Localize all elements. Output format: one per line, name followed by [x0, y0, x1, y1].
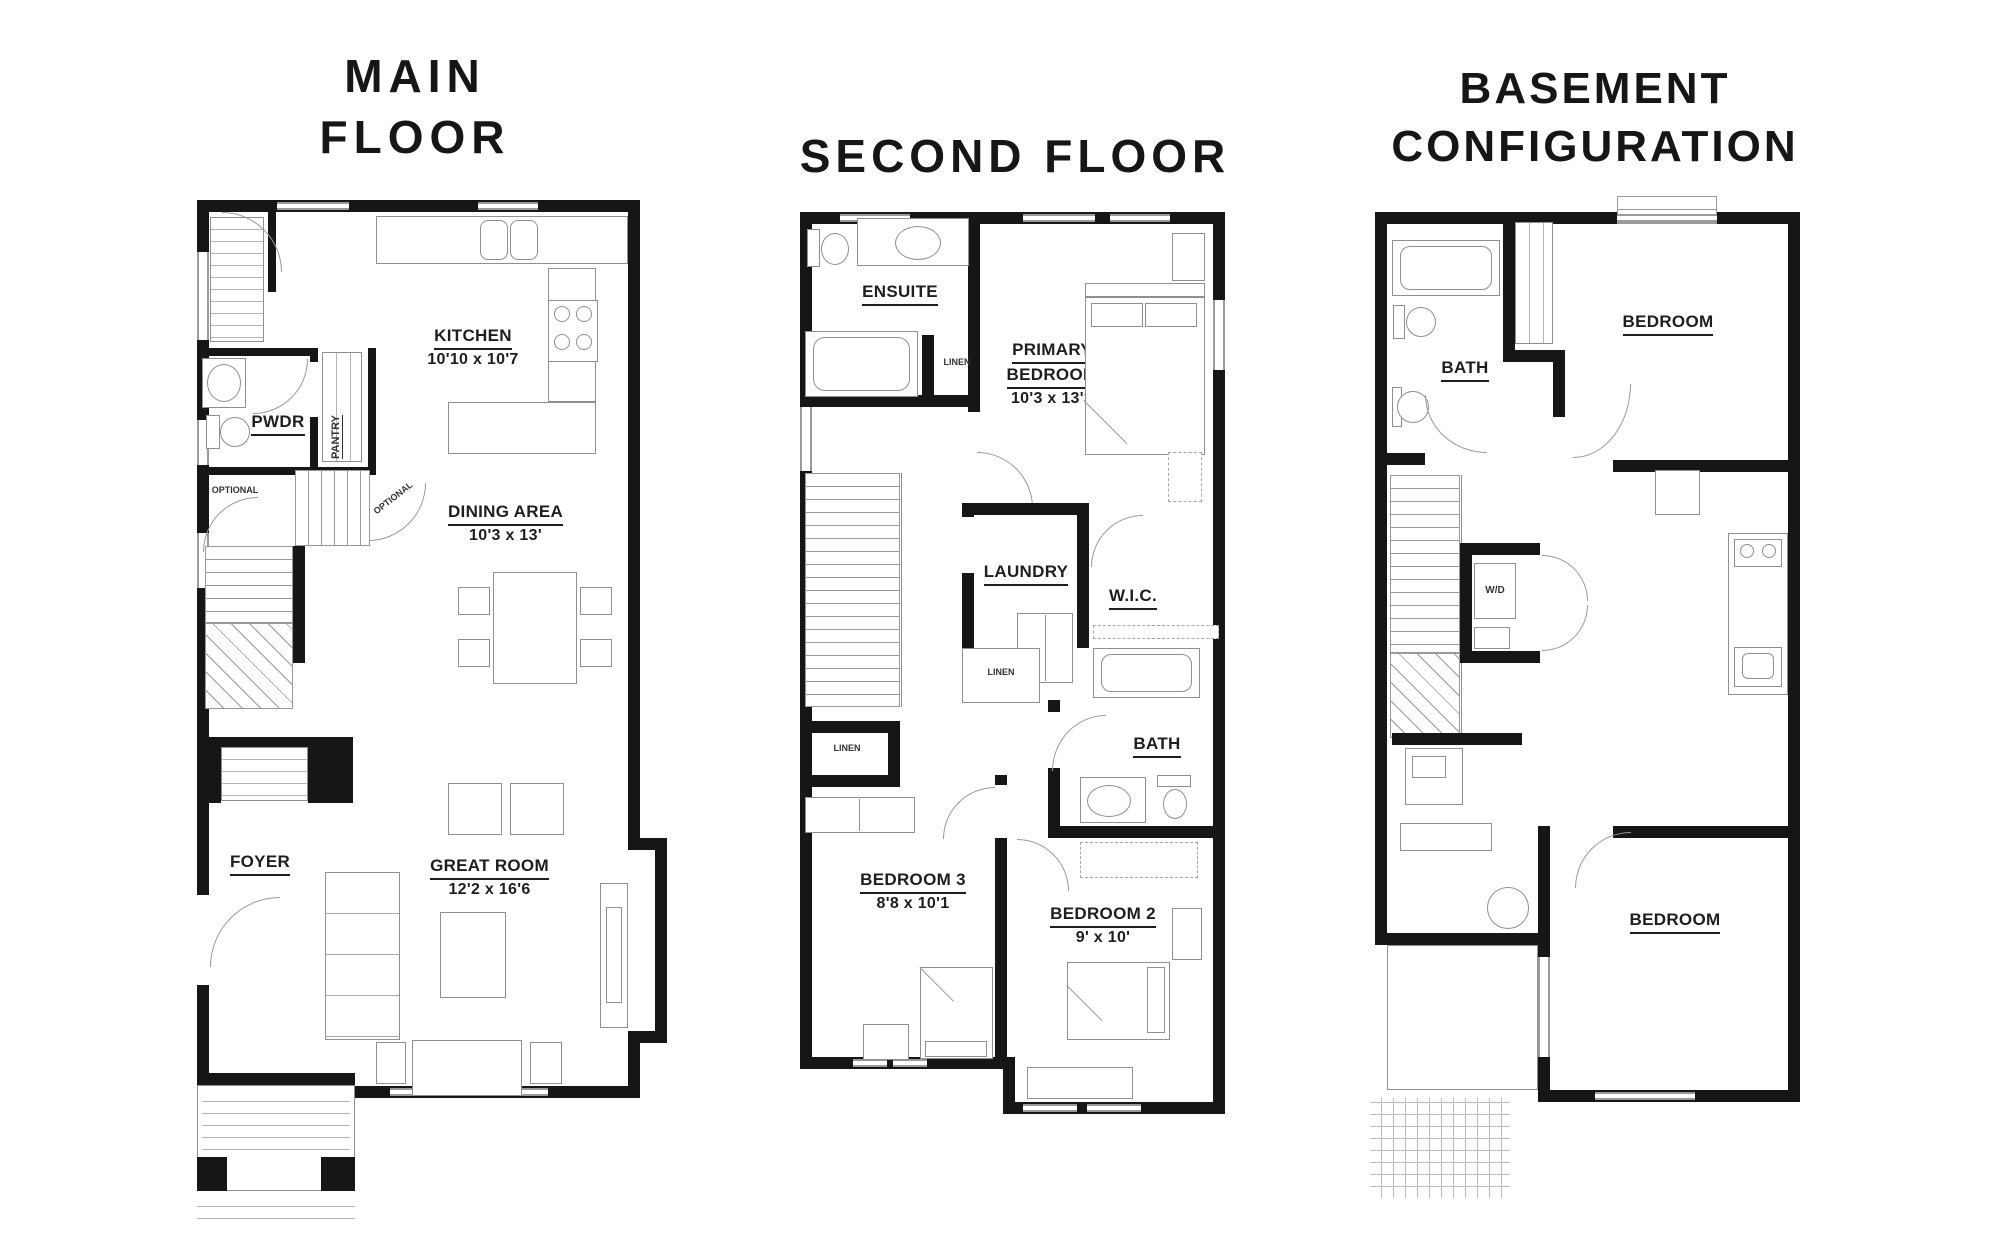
- bedroom2-label: BEDROOM 2 9' x 10': [1033, 903, 1173, 949]
- window: [1595, 1092, 1695, 1100]
- entry-door-arc: [210, 897, 280, 967]
- bedroom-top-label: BEDROOM: [1598, 311, 1738, 336]
- door-arc: [1052, 715, 1106, 771]
- toilet: [1406, 307, 1436, 337]
- wic-label: W.I.C.: [1089, 585, 1177, 610]
- wall: [1460, 543, 1472, 663]
- basement-title: BASEMENT CONFIGURATION: [1355, 60, 1835, 176]
- bath-label: BATH: [1121, 733, 1193, 758]
- closet-door-divider: [859, 799, 860, 831]
- window: [853, 1059, 887, 1067]
- wall: [308, 747, 353, 803]
- closet-shelves: [1515, 222, 1553, 344]
- pantry-shelves: [322, 352, 362, 462]
- door-arc: [1425, 395, 1487, 453]
- chair: [580, 587, 612, 615]
- wall: [1553, 362, 1565, 417]
- bedroom-bottom-label: BEDROOM: [1605, 909, 1745, 934]
- chair: [458, 639, 490, 667]
- wall: [1460, 543, 1540, 555]
- wd-label: W/D: [1474, 585, 1516, 596]
- window: [197, 252, 209, 340]
- door-arc: [943, 787, 995, 839]
- wall: [205, 747, 221, 803]
- sink: [1087, 785, 1131, 817]
- door-arc: [253, 359, 308, 414]
- wall: [922, 335, 934, 397]
- window: [1110, 214, 1170, 222]
- wall: [655, 838, 667, 1043]
- wall: [628, 200, 640, 850]
- dining-label: DINING AREA 10'3 x 13': [418, 501, 593, 547]
- wall: [1460, 651, 1540, 663]
- porch-steps: [197, 1195, 355, 1230]
- toilet-tank: [807, 229, 820, 267]
- wall: [995, 838, 1007, 1057]
- wall: [1375, 933, 1550, 945]
- main-floor-title-line1: MAIN: [190, 46, 640, 107]
- door-arc: [977, 452, 1033, 508]
- chair: [458, 587, 490, 615]
- wall: [995, 775, 1007, 785]
- toilet-tank: [1157, 775, 1191, 787]
- dining-table: [493, 572, 577, 684]
- bathtub-basin: [1400, 246, 1492, 290]
- kitchenette-sink-basin: [1742, 653, 1774, 679]
- pillow: [1145, 303, 1197, 327]
- window: [277, 202, 349, 210]
- kitchen-sink: [510, 220, 538, 260]
- bath-label: BATH: [1410, 357, 1520, 382]
- burner: [554, 306, 570, 322]
- toilet: [821, 233, 849, 265]
- armchair: [448, 783, 502, 835]
- sink: [895, 226, 941, 260]
- stairs: [205, 546, 293, 623]
- toilet-tank: [1393, 305, 1405, 339]
- dresser: [863, 1024, 909, 1060]
- main-floor-plan: PWDR PANTRY OPTIONAL OPTIONAL KITCHEN 10…: [190, 195, 690, 1235]
- table: [1655, 470, 1700, 515]
- porch-boards: [202, 1090, 350, 1150]
- armchair: [510, 783, 564, 835]
- window: [478, 202, 538, 210]
- washer-dryer-divider: [1045, 615, 1046, 681]
- wall: [205, 737, 353, 747]
- toilet: [1163, 789, 1187, 819]
- desk-monitor: [1412, 756, 1446, 778]
- optional-label: OPTIONAL: [203, 485, 267, 495]
- bathtub-basin: [1101, 654, 1192, 692]
- closet-shelves: [221, 747, 308, 801]
- wall: [1048, 700, 1060, 712]
- chair: [580, 639, 612, 667]
- window: [800, 405, 812, 471]
- window: [1617, 214, 1717, 222]
- door-arc: [203, 497, 258, 552]
- second-floor-title: SECOND FLOOR: [780, 126, 1250, 187]
- stairs: [295, 470, 370, 546]
- stairs: [1390, 475, 1460, 653]
- window: [1023, 214, 1095, 222]
- door-opening: [197, 895, 209, 985]
- basement-plan: BATH BEDROOM W/D BEDROOM: [1370, 195, 1830, 1205]
- console-table: [1400, 823, 1492, 851]
- bedroom3-label: BEDROOM 3 8'8 x 10'1: [843, 869, 983, 915]
- pwdr-label: PWDR: [238, 411, 318, 436]
- kitchen-sink: [480, 220, 508, 260]
- patio-door: [1538, 957, 1550, 1057]
- bed-headboard: [1085, 283, 1205, 297]
- nightstand: [1172, 233, 1205, 281]
- closet-shelf: [1093, 625, 1219, 639]
- porch-post: [197, 1157, 227, 1191]
- wall: [1613, 460, 1800, 472]
- pillow: [925, 1041, 987, 1057]
- wall: [368, 348, 376, 475]
- kitchen-island: [448, 402, 596, 454]
- wall: [197, 348, 318, 356]
- stairs: [805, 473, 900, 707]
- main-floor-title-line2: FLOOR: [190, 107, 640, 168]
- wall: [1375, 453, 1425, 465]
- ensuite-label: ENSUITE: [840, 281, 960, 306]
- floor-plan-image: { "titles": { "main_line1": "MAIN", "mai…: [0, 0, 2000, 1235]
- coffee-table: [440, 912, 506, 998]
- linen-label: LINEN: [807, 743, 887, 753]
- closet: [1080, 842, 1198, 878]
- fireplace-insert: [606, 907, 622, 1003]
- sofa: [325, 872, 400, 1040]
- door-arc: [1575, 832, 1631, 888]
- wall: [293, 546, 305, 663]
- wall: [962, 503, 974, 517]
- wall: [628, 1031, 667, 1043]
- foyer-label: FOYER: [215, 851, 305, 876]
- wall: [628, 1043, 640, 1098]
- patio-hatch: [1370, 1098, 1510, 1198]
- toilet-tank: [206, 415, 220, 449]
- door-arc: [1017, 839, 1069, 891]
- wall: [962, 503, 1089, 515]
- loveseat: [412, 1040, 522, 1096]
- wall: [1375, 212, 1800, 224]
- wall: [800, 775, 900, 787]
- door-arc: [1573, 384, 1631, 458]
- pillow: [1147, 967, 1165, 1033]
- door-arc: [1091, 515, 1143, 567]
- closet-sliding-doors: [805, 797, 915, 833]
- chair: [1487, 887, 1529, 929]
- burner: [576, 306, 592, 322]
- door-arc: [1542, 555, 1588, 601]
- wall: [197, 200, 640, 212]
- dresser: [1168, 452, 1202, 502]
- wall: [800, 721, 900, 733]
- window: [1023, 1104, 1077, 1112]
- basement-title-line2: CONFIGURATION: [1355, 118, 1835, 176]
- kitchen-label: KITCHEN 10'10 x 10'7: [388, 325, 558, 371]
- main-floor-title: MAIN FLOOR: [190, 46, 640, 167]
- dresser: [1027, 1067, 1133, 1099]
- wall: [1613, 826, 1800, 838]
- pillow: [1091, 303, 1143, 327]
- sink: [207, 364, 241, 402]
- side-table: [530, 1042, 562, 1084]
- bathtub-basin: [813, 337, 910, 391]
- burner: [1762, 544, 1776, 558]
- side-table: [376, 1042, 406, 1084]
- patio: [1387, 945, 1538, 1090]
- wall: [1375, 212, 1387, 945]
- stair-rail: [901, 473, 902, 707]
- door-arc: [1542, 605, 1588, 651]
- laundry-label: LAUNDRY: [965, 561, 1087, 586]
- wall: [197, 1073, 355, 1085]
- wall: [1788, 212, 1800, 1102]
- burner: [1740, 544, 1754, 558]
- window: [893, 1059, 927, 1067]
- stairs-under: [1390, 653, 1460, 738]
- basement-title-line1: BASEMENT: [1355, 60, 1835, 118]
- linen-label: LINEN: [935, 357, 979, 367]
- stairs-winders: [205, 623, 293, 709]
- nightstand: [1172, 908, 1202, 960]
- wall: [310, 348, 318, 362]
- shelf: [1474, 627, 1510, 649]
- porch-post: [321, 1157, 355, 1191]
- great-room-label: GREAT ROOM 12'2 x 16'6: [402, 855, 577, 901]
- window: [1087, 1104, 1141, 1112]
- window: [1213, 300, 1225, 370]
- wall: [1392, 733, 1522, 745]
- second-floor-plan: ENSUITE LINEN PRIMARY BEDROOM 10'3 x 13'…: [795, 205, 1235, 1125]
- burner: [576, 334, 592, 350]
- wall: [1503, 212, 1515, 355]
- linen-label: LINEN: [967, 667, 1035, 677]
- wall: [1048, 826, 1225, 838]
- pantry-label: PANTRY: [330, 367, 342, 459]
